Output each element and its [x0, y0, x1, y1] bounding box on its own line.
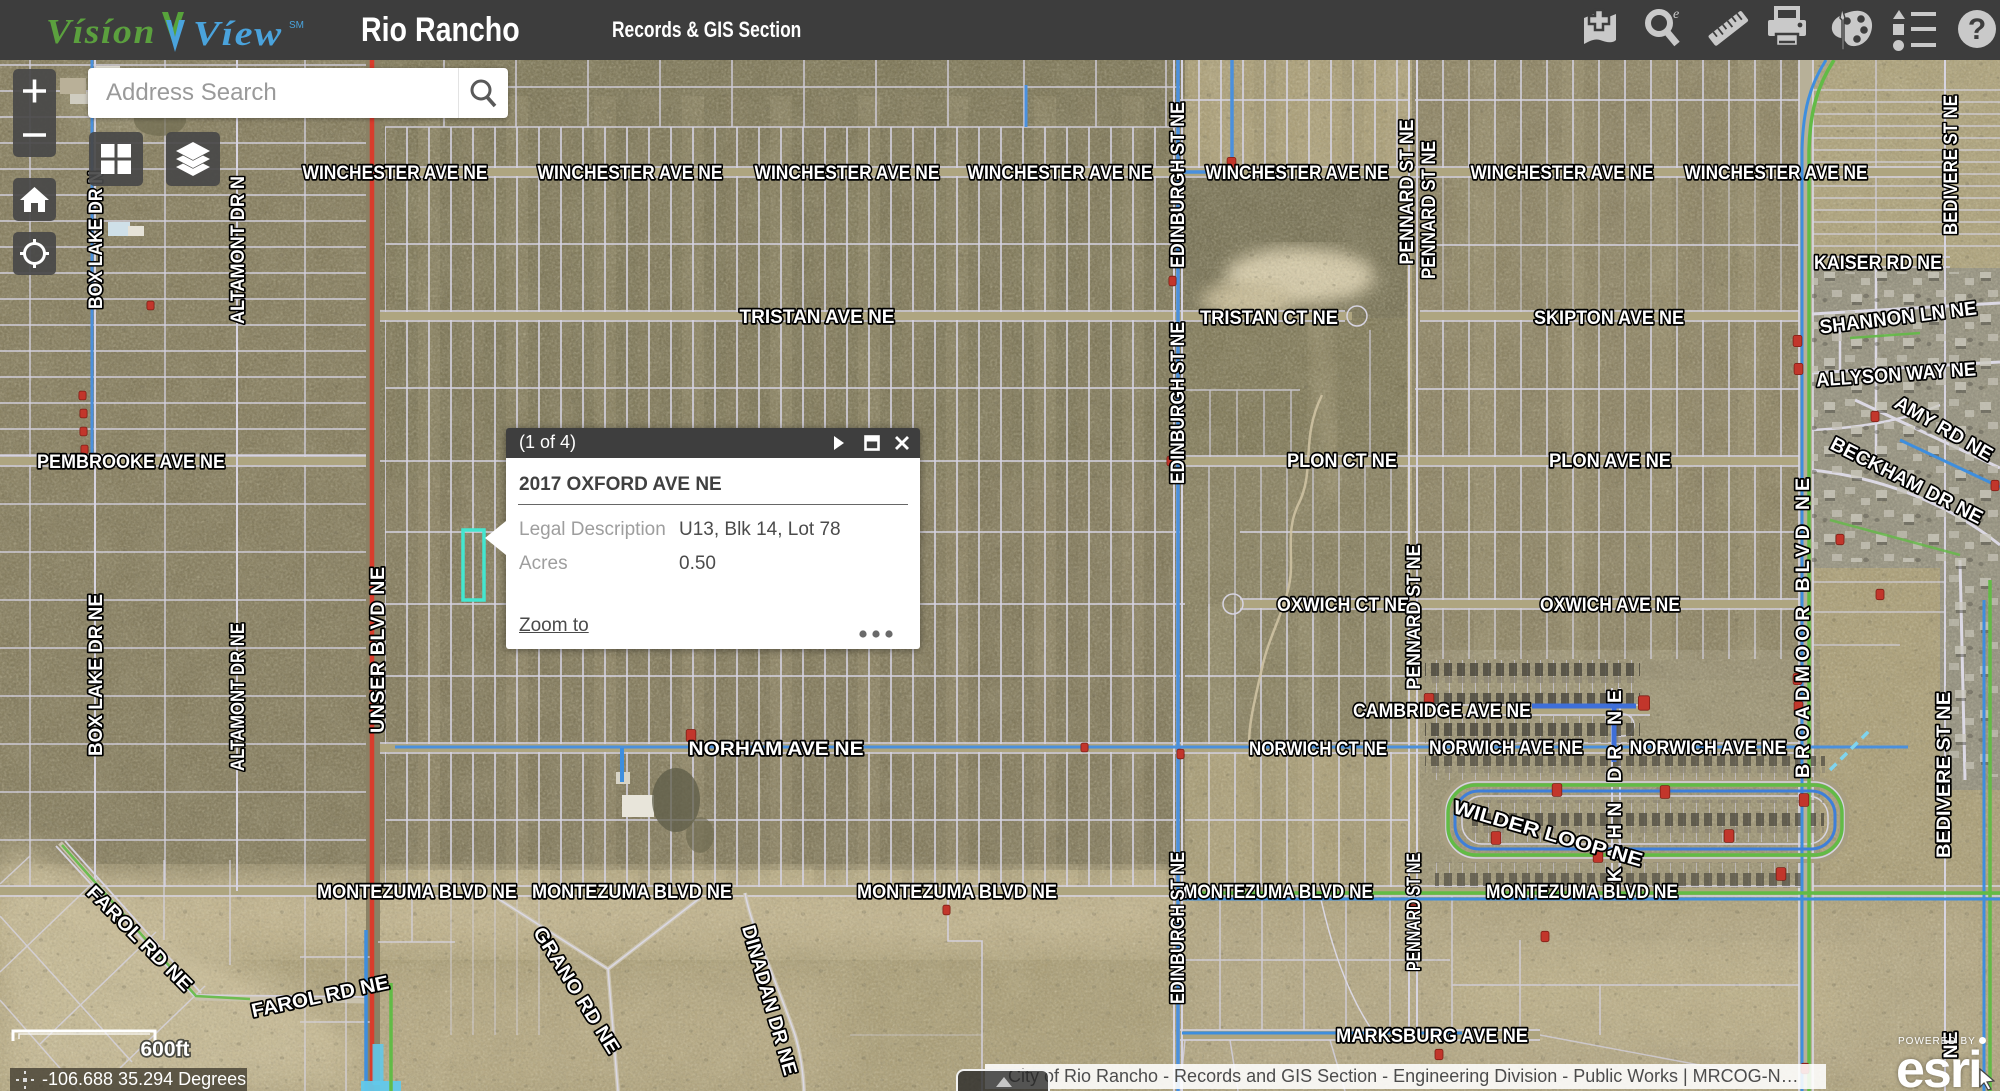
svg-text:MONTEZUMA BLVD NE: MONTEZUMA BLVD NE	[317, 881, 517, 903]
svg-text:ALTAMONT DR N: ALTAMONT DR N	[227, 176, 249, 324]
svg-text:WINCHESTER AVE NE: WINCHESTER AVE NE	[755, 162, 940, 184]
svg-text:WINCHESTER AVE NE: WINCHESTER AVE NE	[1206, 162, 1389, 184]
svg-text:BEDIVERE ST NE: BEDIVERE ST NE	[1940, 95, 1962, 235]
svg-text:MONTEZUMA BLVD NE: MONTEZUMA BLVD NE	[857, 881, 1057, 903]
svg-text:PENNARD ST NE: PENNARD ST NE	[1418, 141, 1440, 279]
svg-text:EDINBURGH ST NE: EDINBURGH ST NE	[1167, 322, 1189, 484]
svg-text:Víew: Víew	[193, 14, 283, 53]
svg-text:Vísíon: Vísíon	[46, 12, 156, 51]
svg-text:MONTEZUMA BLVD NE: MONTEZUMA BLVD NE	[1486, 881, 1678, 903]
svg-text:BOX LAKE DR NE: BOX LAKE DR NE	[85, 594, 107, 756]
svg-text:NORHAM AVE NE: NORHAM AVE NE	[689, 738, 864, 760]
svg-text:WINCHESTER AVE NE: WINCHESTER AVE NE	[538, 162, 723, 184]
svg-text:PLON AVE NE: PLON AVE NE	[1549, 450, 1671, 472]
svg-text:MONTEZUMA BLVD NE: MONTEZUMA BLVD NE	[1183, 881, 1373, 903]
svg-text:PENNARD ST NE: PENNARD ST NE	[1403, 545, 1425, 690]
svg-text:ALTAMONT DR NE: ALTAMONT DR NE	[227, 623, 249, 771]
svg-text:WINCHESTER AVE NE: WINCHESTER AVE NE	[1685, 162, 1868, 184]
svg-text:EDINBURGH ST NE: EDINBURGH ST NE	[1167, 852, 1189, 1004]
svg-text:UNSER BLVD NE: UNSER BLVD NE	[367, 567, 389, 733]
svg-text:SM: SM	[289, 20, 304, 31]
svg-text:WINCHESTER AVE NE: WINCHESTER AVE NE	[968, 162, 1153, 184]
svg-text:WINCHESTER AVE NE: WINCHESTER AVE NE	[1471, 162, 1654, 184]
svg-text:e: e	[1673, 7, 1679, 22]
svg-text:KAISER RD NE: KAISER RD NE	[1814, 252, 1942, 274]
svg-text:PENNARD ST NE: PENNARD ST NE	[1396, 120, 1418, 265]
svg-text:EDINBURGH ST NE: EDINBURGH ST NE	[1167, 102, 1189, 268]
svg-text:BOX LAKE DR N: BOX LAKE DR N	[85, 171, 107, 309]
svg-text:MARKSBURG AVE NE: MARKSBURG AVE NE	[1336, 1025, 1528, 1047]
svg-text:MONTEZUMA BLVD NE: MONTEZUMA BLVD NE	[532, 881, 732, 903]
svg-text:OXWICH AVE NE: OXWICH AVE NE	[1540, 594, 1680, 616]
svg-text:WINCHESTER AVE NE: WINCHESTER AVE NE	[303, 162, 488, 184]
svg-text:600ft: 600ft	[140, 1038, 189, 1061]
svg-text:CAMBRIDGE AVE NE: CAMBRIDGE AVE NE	[1353, 700, 1531, 722]
svg-text:OXWICH CT NE: OXWICH CT NE	[1277, 594, 1409, 616]
svg-text:PENNARD ST NE: PENNARD ST NE	[1403, 853, 1425, 971]
svg-text:TRISTAN AVE NE: TRISTAN AVE NE	[740, 306, 895, 328]
svg-text:SKIPTON AVE NE: SKIPTON AVE NE	[1534, 307, 1684, 329]
svg-text:TRISTAN CT NE: TRISTAN CT NE	[1200, 307, 1338, 329]
svg-text:PEMBROOKE AVE NE: PEMBROOKE AVE NE	[37, 451, 225, 473]
svg-text:BEDIVERE ST NE: BEDIVERE ST NE	[1933, 692, 1955, 858]
svg-text:?: ?	[1968, 13, 1986, 46]
svg-text:NORWICH CT NE: NORWICH CT NE	[1249, 738, 1387, 760]
svg-text:NORWICH AVE NE: NORWICH AVE NE	[1429, 737, 1583, 759]
svg-text:NORWICH AVE NE: NORWICH AVE NE	[1630, 737, 1787, 759]
svg-text:PLON CT NE: PLON CT NE	[1287, 450, 1397, 472]
